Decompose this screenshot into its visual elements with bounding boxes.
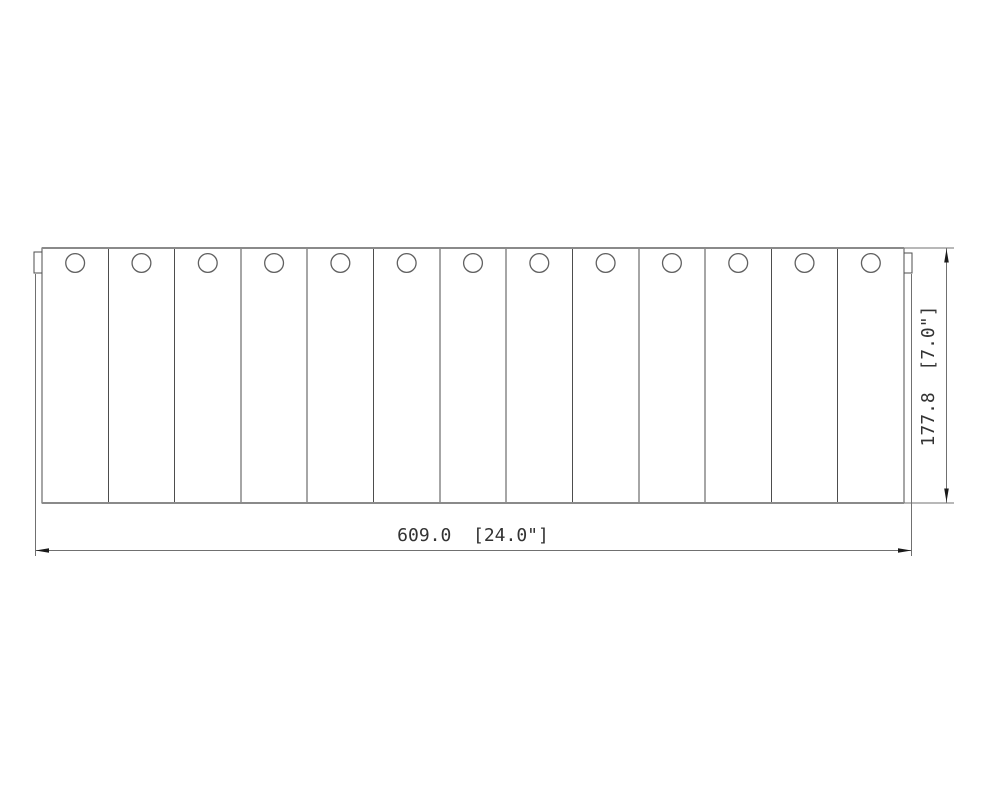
width-arrow-left: [36, 548, 50, 553]
slat-11: [705, 248, 771, 503]
slatted-panel-assembly: [34, 248, 912, 503]
slat-5: [307, 248, 373, 503]
technical-drawing-canvas: 609.0 [24.0"] 177.8 [7.0"]: [0, 0, 1000, 800]
slat-1: [42, 248, 108, 503]
slat-6: [374, 248, 440, 503]
width-arrow-right: [898, 548, 912, 553]
slat-7: [440, 248, 506, 503]
height-arrow-top: [944, 249, 949, 263]
slat-3: [175, 248, 241, 503]
slat-9: [572, 248, 638, 503]
left-mounting-tab: [34, 252, 42, 273]
height-dimension-label: 177.8 [7.0"]: [918, 306, 939, 447]
slat-12: [771, 248, 837, 503]
slat-group: [42, 248, 904, 503]
slat-4: [241, 248, 307, 503]
slat-13: [838, 248, 904, 503]
slat-2: [108, 248, 174, 503]
slat-8: [506, 248, 572, 503]
width-dimension-label: 609.0 [24.0"]: [397, 525, 549, 546]
slat-10: [639, 248, 705, 503]
right-mounting-tab: [904, 253, 912, 273]
height-arrow-bottom: [944, 489, 949, 503]
